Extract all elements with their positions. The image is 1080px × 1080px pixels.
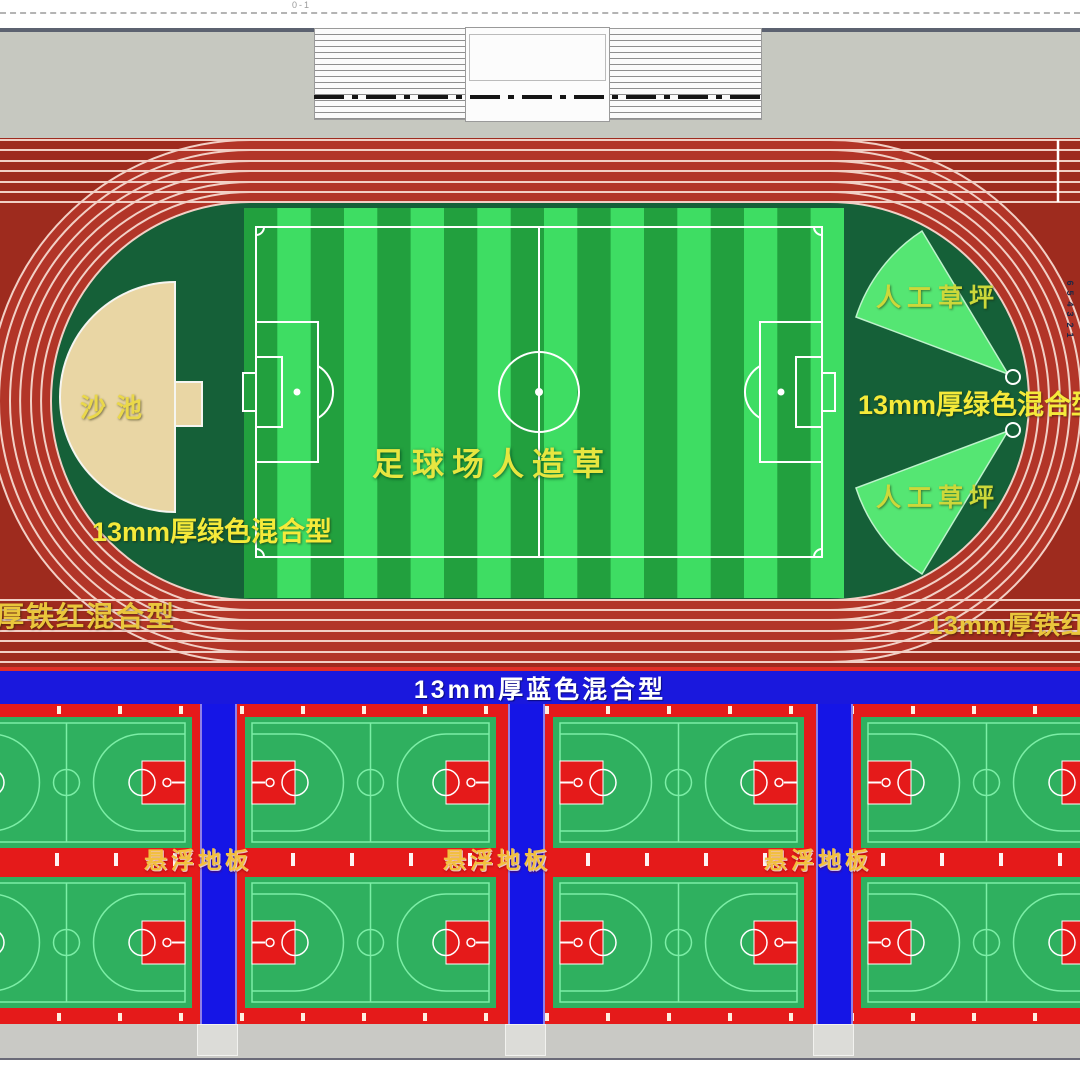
turf-label-top: 人工草坪 (876, 285, 1000, 313)
bottom-boundary-line (0, 1058, 1080, 1060)
walkway-column-3 (813, 1024, 854, 1056)
throw-circle-bottom (1006, 423, 1020, 437)
lane-number: 1 (1065, 329, 1075, 341)
iron-red-label-right: 13mm厚铁红 (928, 611, 1080, 640)
stadium-plan-page: 0-1 (0, 0, 1080, 1080)
green-mix-label-right: 13mm厚绿色混合型 (858, 391, 1080, 421)
blue-band-label: 13mm厚蓝色混合型 (414, 670, 666, 706)
soccer-turf-stripes (244, 208, 844, 598)
apron-edge-left (0, 28, 314, 32)
throw-circle-top (1006, 370, 1020, 384)
top-dashed-line (0, 12, 1080, 14)
sand-pit-label: 沙池 (80, 394, 152, 423)
blue-runway-band: 13mm厚蓝色混合型 (0, 671, 1080, 704)
grandstand-podium (465, 27, 610, 122)
floor-label-1: 悬浮地板 (88, 848, 308, 873)
grandstand-podium-roof (469, 34, 606, 81)
walkway-column-1 (197, 1024, 238, 1056)
floor-label-3: 悬浮地板 (708, 848, 928, 873)
turf-label-bottom: 人工草坪 (876, 485, 1000, 513)
soccer-field-label: 足球场人造草 (372, 447, 612, 482)
apron-edge-right (760, 28, 1080, 32)
grandstand-right-bleacher (609, 28, 762, 120)
floor-label-2: 悬浮地板 (387, 848, 607, 873)
green-mix-label-left: 13mm厚绿色混合型 (92, 518, 332, 548)
grandstand-left-bleacher (314, 28, 469, 120)
walkway-column-2 (505, 1024, 546, 1056)
top-note-text: 0-1 (292, 0, 311, 10)
iron-red-label-left: 厚铁红混合型 (0, 602, 176, 633)
grandstand-walkway-line (314, 95, 760, 99)
